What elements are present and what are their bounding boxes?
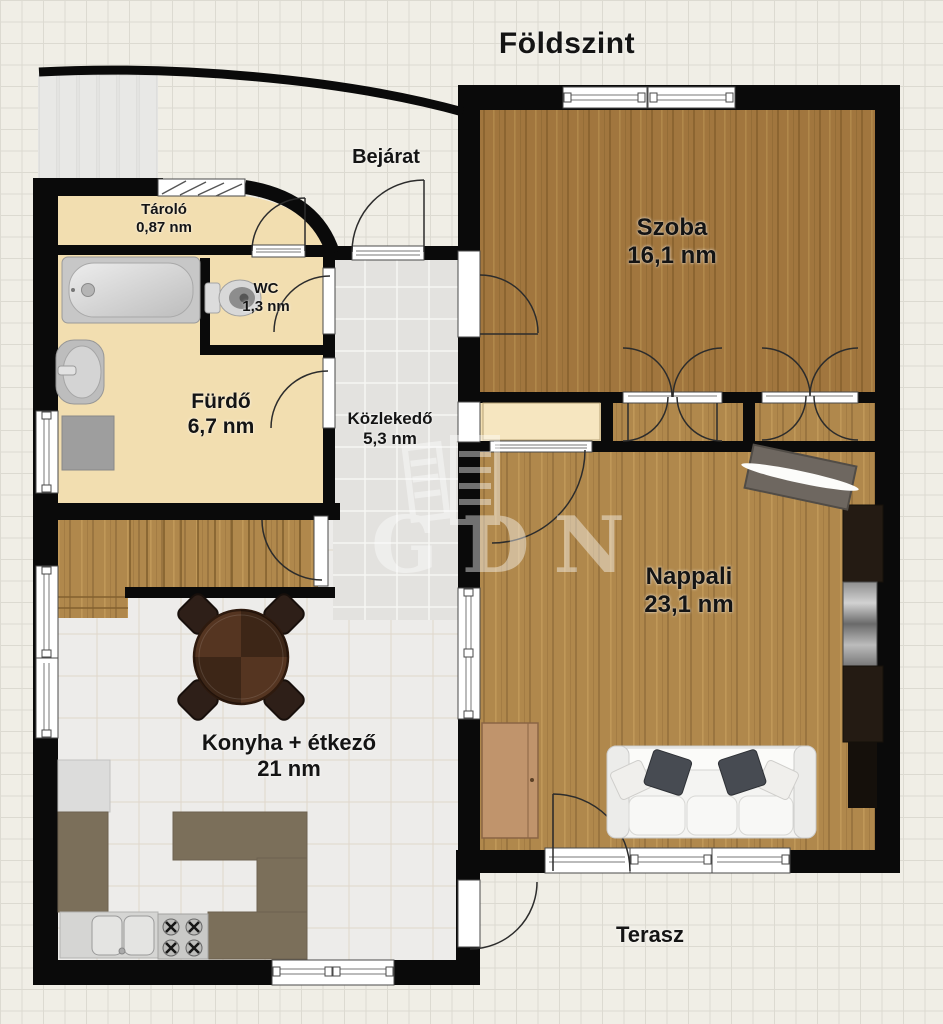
closet-cabinet [483, 403, 600, 440]
room-name: Közlekedő [347, 409, 432, 429]
room-area: 6,7 nm [188, 415, 255, 440]
wc-top-door-sill [252, 245, 305, 257]
exterior-entrance-stairs [38, 74, 158, 182]
entrance-door-swing [352, 180, 424, 252]
kitchen-sink [60, 912, 158, 958]
szoba-window [563, 87, 735, 108]
room-area: 5,3 nm [347, 429, 432, 449]
szoba-door-frame [458, 251, 480, 337]
room-label-szoba: Szoba 16,1 nm [627, 214, 716, 271]
terrace-label: Terasz [616, 922, 684, 948]
interior-window [458, 588, 480, 719]
page-title: Földszint [499, 26, 635, 61]
tv [843, 582, 877, 666]
wall-under-stairs [125, 587, 335, 598]
room-label-nappali: Nappali 23,1 nm [644, 563, 733, 620]
room-name: Fürdő [188, 390, 255, 415]
bathroom-window [36, 411, 58, 493]
terrace-windows [630, 848, 790, 873]
entrance-door-sill [352, 246, 424, 260]
room-name: Konyha + étkező [202, 730, 376, 756]
entrance-label: Bejárat [352, 146, 420, 170]
kitchen-left-window-1 [36, 566, 58, 658]
room-label-kitchen: Konyha + étkező 21 nm [202, 730, 376, 782]
room-area: 0,87 nm [136, 219, 192, 237]
wall-bottom-kitchen [33, 960, 478, 985]
room-name: WC [242, 280, 290, 298]
wall-wc-south [200, 345, 335, 355]
bathroom-door-frame [323, 358, 335, 428]
wall-closet-bottom [592, 441, 877, 452]
room-label-bathroom: Fürdő 6,7 nm [188, 390, 255, 440]
room-label-wc: WC 1,3 nm [242, 280, 290, 315]
room-label-storage: Tároló 0,87 nm [136, 201, 192, 236]
room-area: 23,1 nm [644, 591, 733, 619]
stairs-door-frame [314, 516, 328, 586]
floor-plan-page: GDN Földszint Bejárat Tároló 0,87 nm WC … [0, 0, 943, 1024]
kitchen-left-window-2 [36, 658, 58, 738]
watermark-text: GDN [371, 500, 649, 591]
washing-machine [62, 416, 114, 470]
wall-right [875, 85, 900, 873]
terrace-door-sill [545, 848, 630, 873]
sofa [607, 746, 816, 838]
wall-storage-top [33, 178, 163, 196]
room-name: Szoba [627, 214, 716, 242]
stove [158, 914, 208, 959]
wc-door-frame [323, 268, 335, 334]
bathtub [62, 257, 200, 323]
room-area: 16,1 nm [627, 242, 716, 270]
storage-window [158, 179, 245, 196]
bathroom-sink [56, 340, 104, 404]
wardrobe [482, 723, 538, 838]
tv-media-unit [843, 505, 883, 808]
dining-table [194, 610, 288, 704]
wall-closet-divider [743, 392, 755, 452]
room-name: Nappali [644, 563, 733, 591]
wall-storage-south [58, 245, 252, 255]
room-label-hallway: Közlekedő 5,3 nm [347, 409, 432, 449]
room-name: Tároló [136, 201, 192, 219]
fridge [58, 760, 110, 812]
floor-plan-drawing: GDN [0, 0, 943, 1024]
nappali-door-sill [490, 441, 592, 452]
kitchen-bottom-window [272, 960, 394, 985]
room-area: 1,3 nm [242, 298, 290, 316]
kitchen-terrace-door-frame [458, 880, 480, 947]
wall-bathroom-south [45, 503, 340, 520]
room-area: 21 nm [202, 756, 376, 782]
